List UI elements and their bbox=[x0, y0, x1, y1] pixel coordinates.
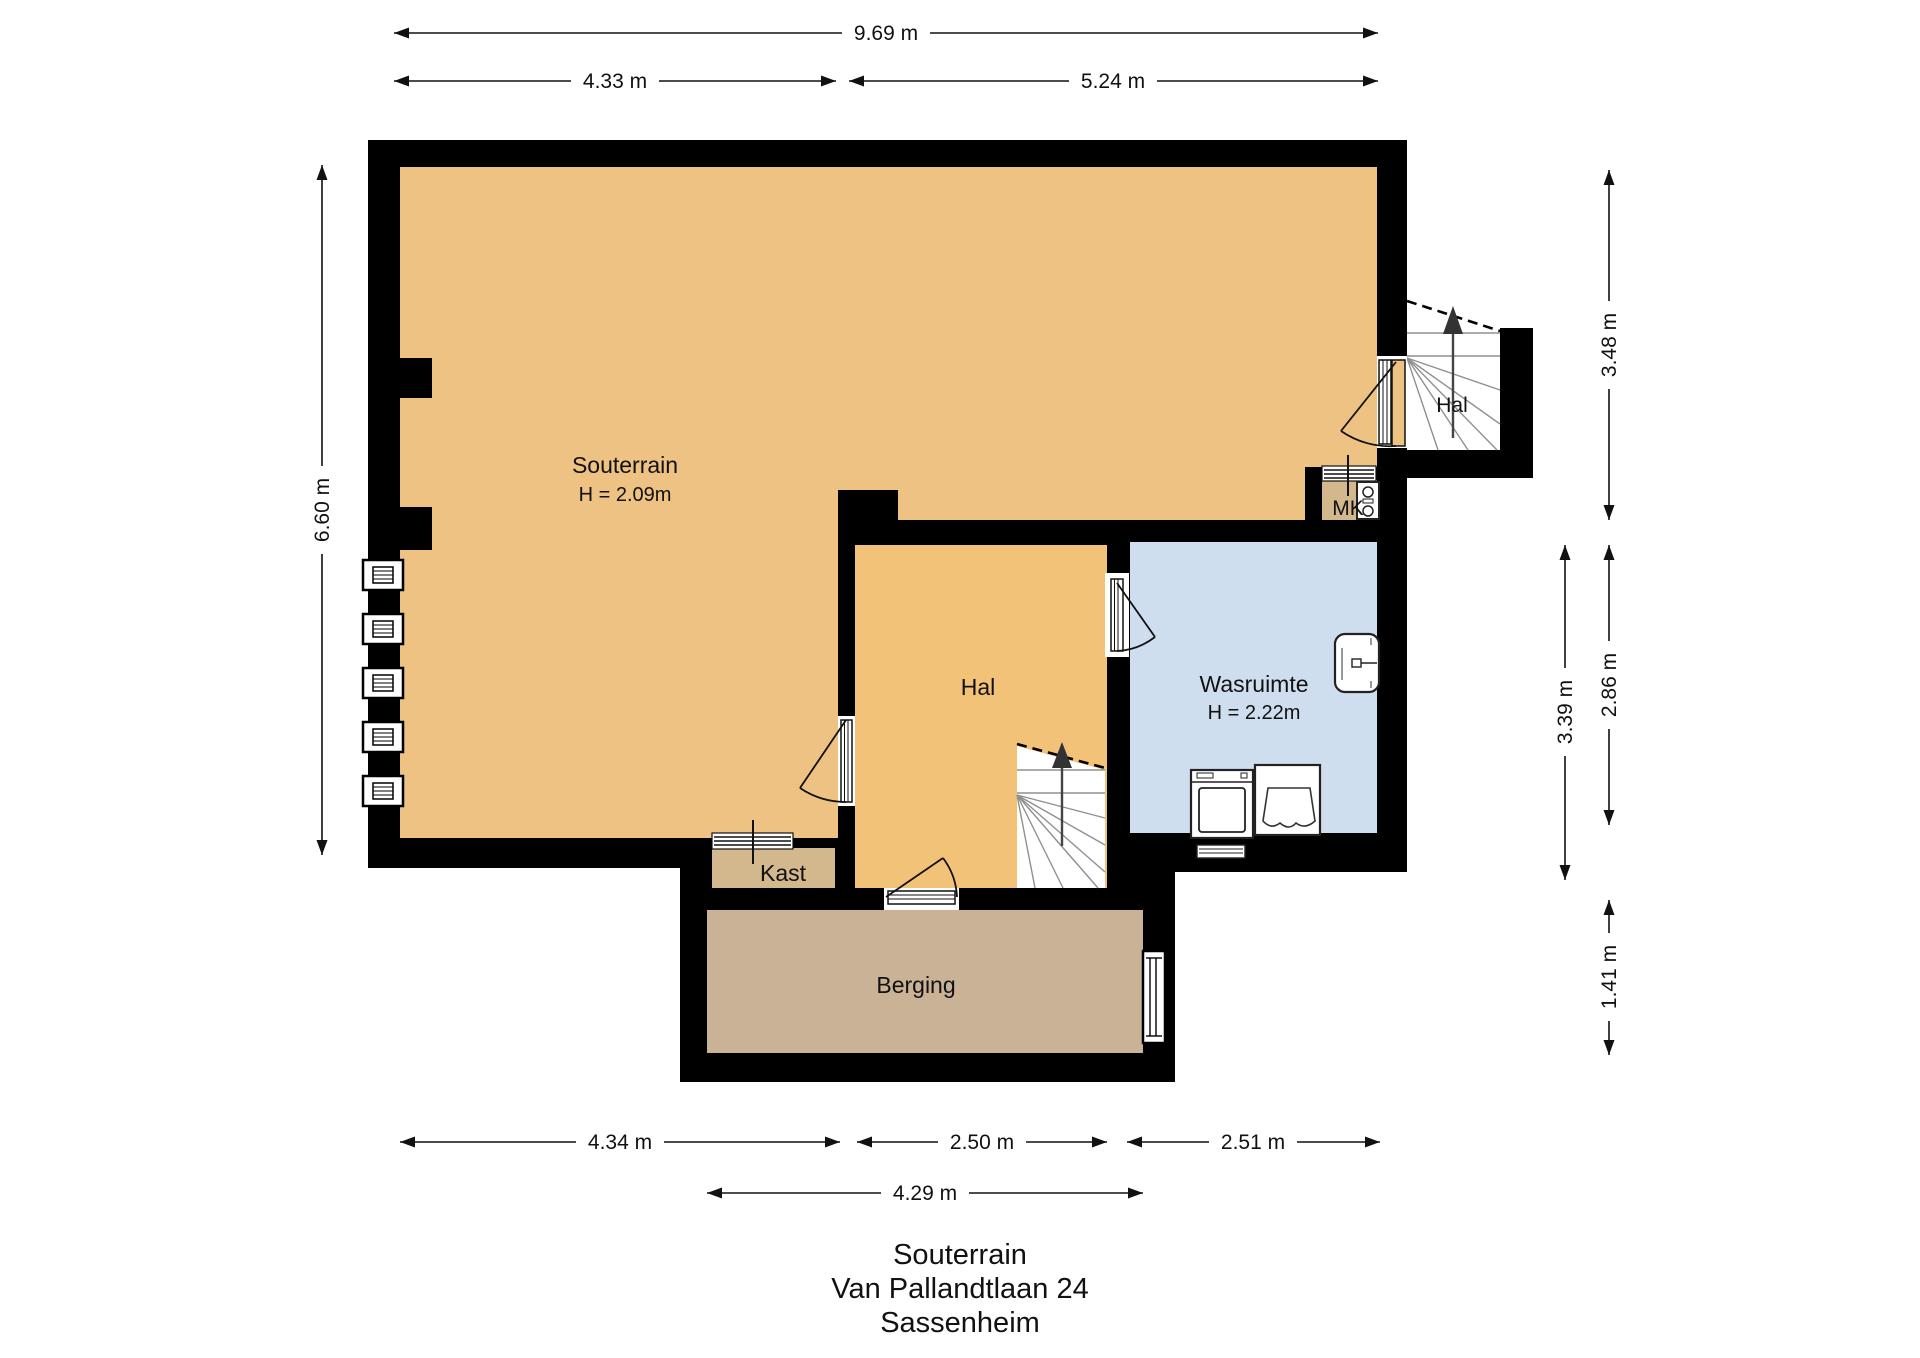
window-icon bbox=[363, 722, 403, 752]
dim-bottom-left: 4.34 m bbox=[400, 1129, 840, 1155]
room-height-souterrain: H = 2.09m bbox=[579, 484, 672, 506]
dim-label: 1.41 m bbox=[1598, 945, 1621, 1009]
dim-label: 2.86 m bbox=[1598, 653, 1621, 717]
pilaster-lower bbox=[400, 507, 432, 550]
dim-bottom-right: 2.51 m bbox=[1127, 1129, 1380, 1155]
room-label-berging: Berging bbox=[876, 972, 955, 998]
dim-right-lower: 1.41 m bbox=[1596, 900, 1622, 1055]
stair-bumpout-bottom-wall bbox=[1407, 450, 1533, 478]
window-icon bbox=[363, 560, 403, 590]
dim-bottom-berging: 4.29 m bbox=[707, 1180, 1143, 1206]
dim-right-upper: 3.48 m bbox=[1596, 170, 1622, 520]
room-label-souterrain: Souterrain bbox=[572, 452, 678, 478]
dim-label: 3.48 m bbox=[1598, 313, 1621, 377]
title-city: Sassenheim bbox=[880, 1307, 1040, 1339]
dim-top-right: 5.24 m bbox=[849, 68, 1378, 94]
dim-label: 4.33 m bbox=[583, 70, 647, 93]
room-label-hal-boven: Hal bbox=[1436, 394, 1468, 417]
window-icon bbox=[363, 776, 403, 806]
pilaster-upper bbox=[400, 358, 432, 398]
dim-label: 2.51 m bbox=[1221, 1131, 1285, 1154]
floorplan-page: Souterrain H = 2.09m Hal MK Hal Wasruimt… bbox=[0, 0, 1920, 1358]
dim-right-inner: 2.86 m bbox=[1596, 545, 1622, 825]
stairs-upper bbox=[1407, 301, 1500, 450]
dim-right-outer: 3.39 m bbox=[1552, 545, 1578, 880]
room-height-wasruimte: H = 2.22m bbox=[1208, 702, 1301, 724]
dim-label: 4.29 m bbox=[893, 1182, 957, 1205]
floor-plan: Souterrain H = 2.09m Hal MK Hal Wasruimt… bbox=[0, 0, 1920, 1358]
window-icon bbox=[363, 614, 403, 644]
room-label-mk: MK bbox=[1332, 497, 1364, 520]
laundry-basin-icon bbox=[1255, 765, 1320, 835]
dim-left-height: 6.60 m bbox=[309, 165, 335, 855]
door-leaf bbox=[1392, 360, 1405, 446]
room-label-hal: Hal bbox=[961, 674, 996, 700]
window-icon bbox=[363, 668, 403, 698]
sink-icon bbox=[1335, 634, 1379, 692]
dim-label: 5.24 m bbox=[1081, 70, 1145, 93]
plan-title: Souterrain Van Pallandtlaan 24 Sassenhei… bbox=[831, 1239, 1088, 1339]
dim-top-total: 9.69 m bbox=[394, 20, 1378, 46]
washer-icon bbox=[1191, 770, 1253, 858]
dim-label: 9.69 m bbox=[854, 22, 918, 45]
dim-label: 6.60 m bbox=[311, 478, 334, 542]
dim-top-left: 4.33 m bbox=[394, 68, 836, 94]
dim-label: 3.39 m bbox=[1554, 680, 1577, 744]
dim-label: 2.50 m bbox=[950, 1131, 1014, 1154]
room-label-wasruimte: Wasruimte bbox=[1199, 671, 1308, 697]
title-address: Van Pallandtlaan 24 bbox=[831, 1273, 1088, 1305]
room-label-kast: Kast bbox=[760, 860, 807, 886]
wasruimte-bottom-wall bbox=[1107, 833, 1407, 872]
berging-window-icon bbox=[1143, 951, 1165, 1043]
dim-bottom-center: 2.50 m bbox=[857, 1129, 1107, 1155]
title-floor: Souterrain bbox=[893, 1239, 1027, 1271]
dim-label: 4.34 m bbox=[588, 1131, 652, 1154]
